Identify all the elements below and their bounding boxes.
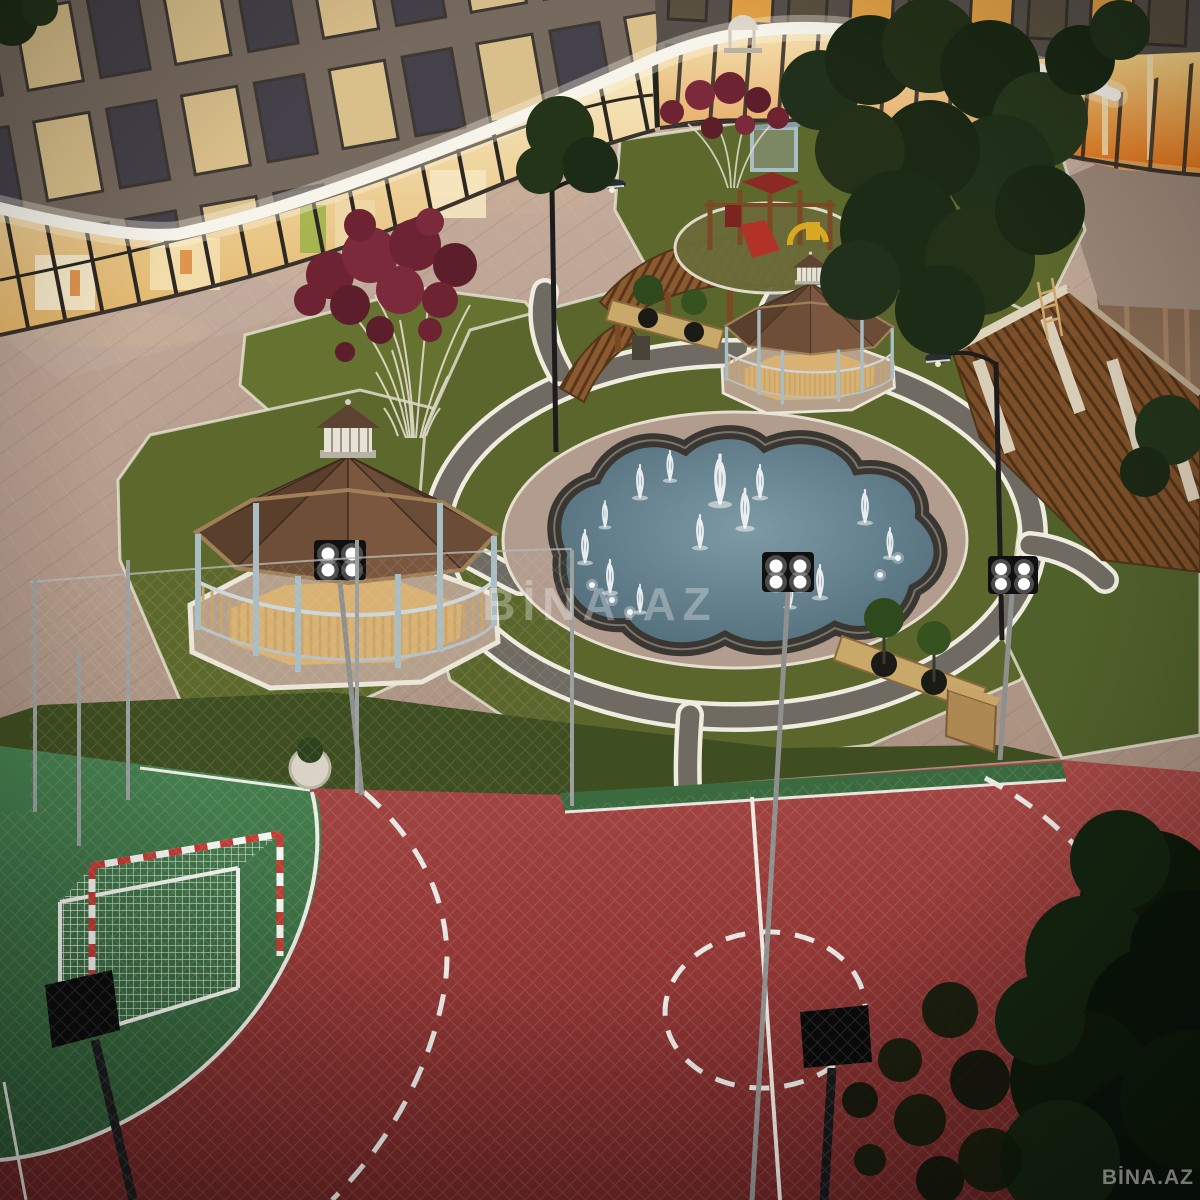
watermark-center: BİNA.AZ bbox=[482, 578, 718, 630]
courtyard-render: BİNA.AZ BİNA.AZ bbox=[0, 0, 1200, 1200]
render-canvas: BİNA.AZ BİNA.AZ bbox=[0, 0, 1200, 1200]
watermark-corner: BİNA.AZ bbox=[1102, 1166, 1194, 1189]
